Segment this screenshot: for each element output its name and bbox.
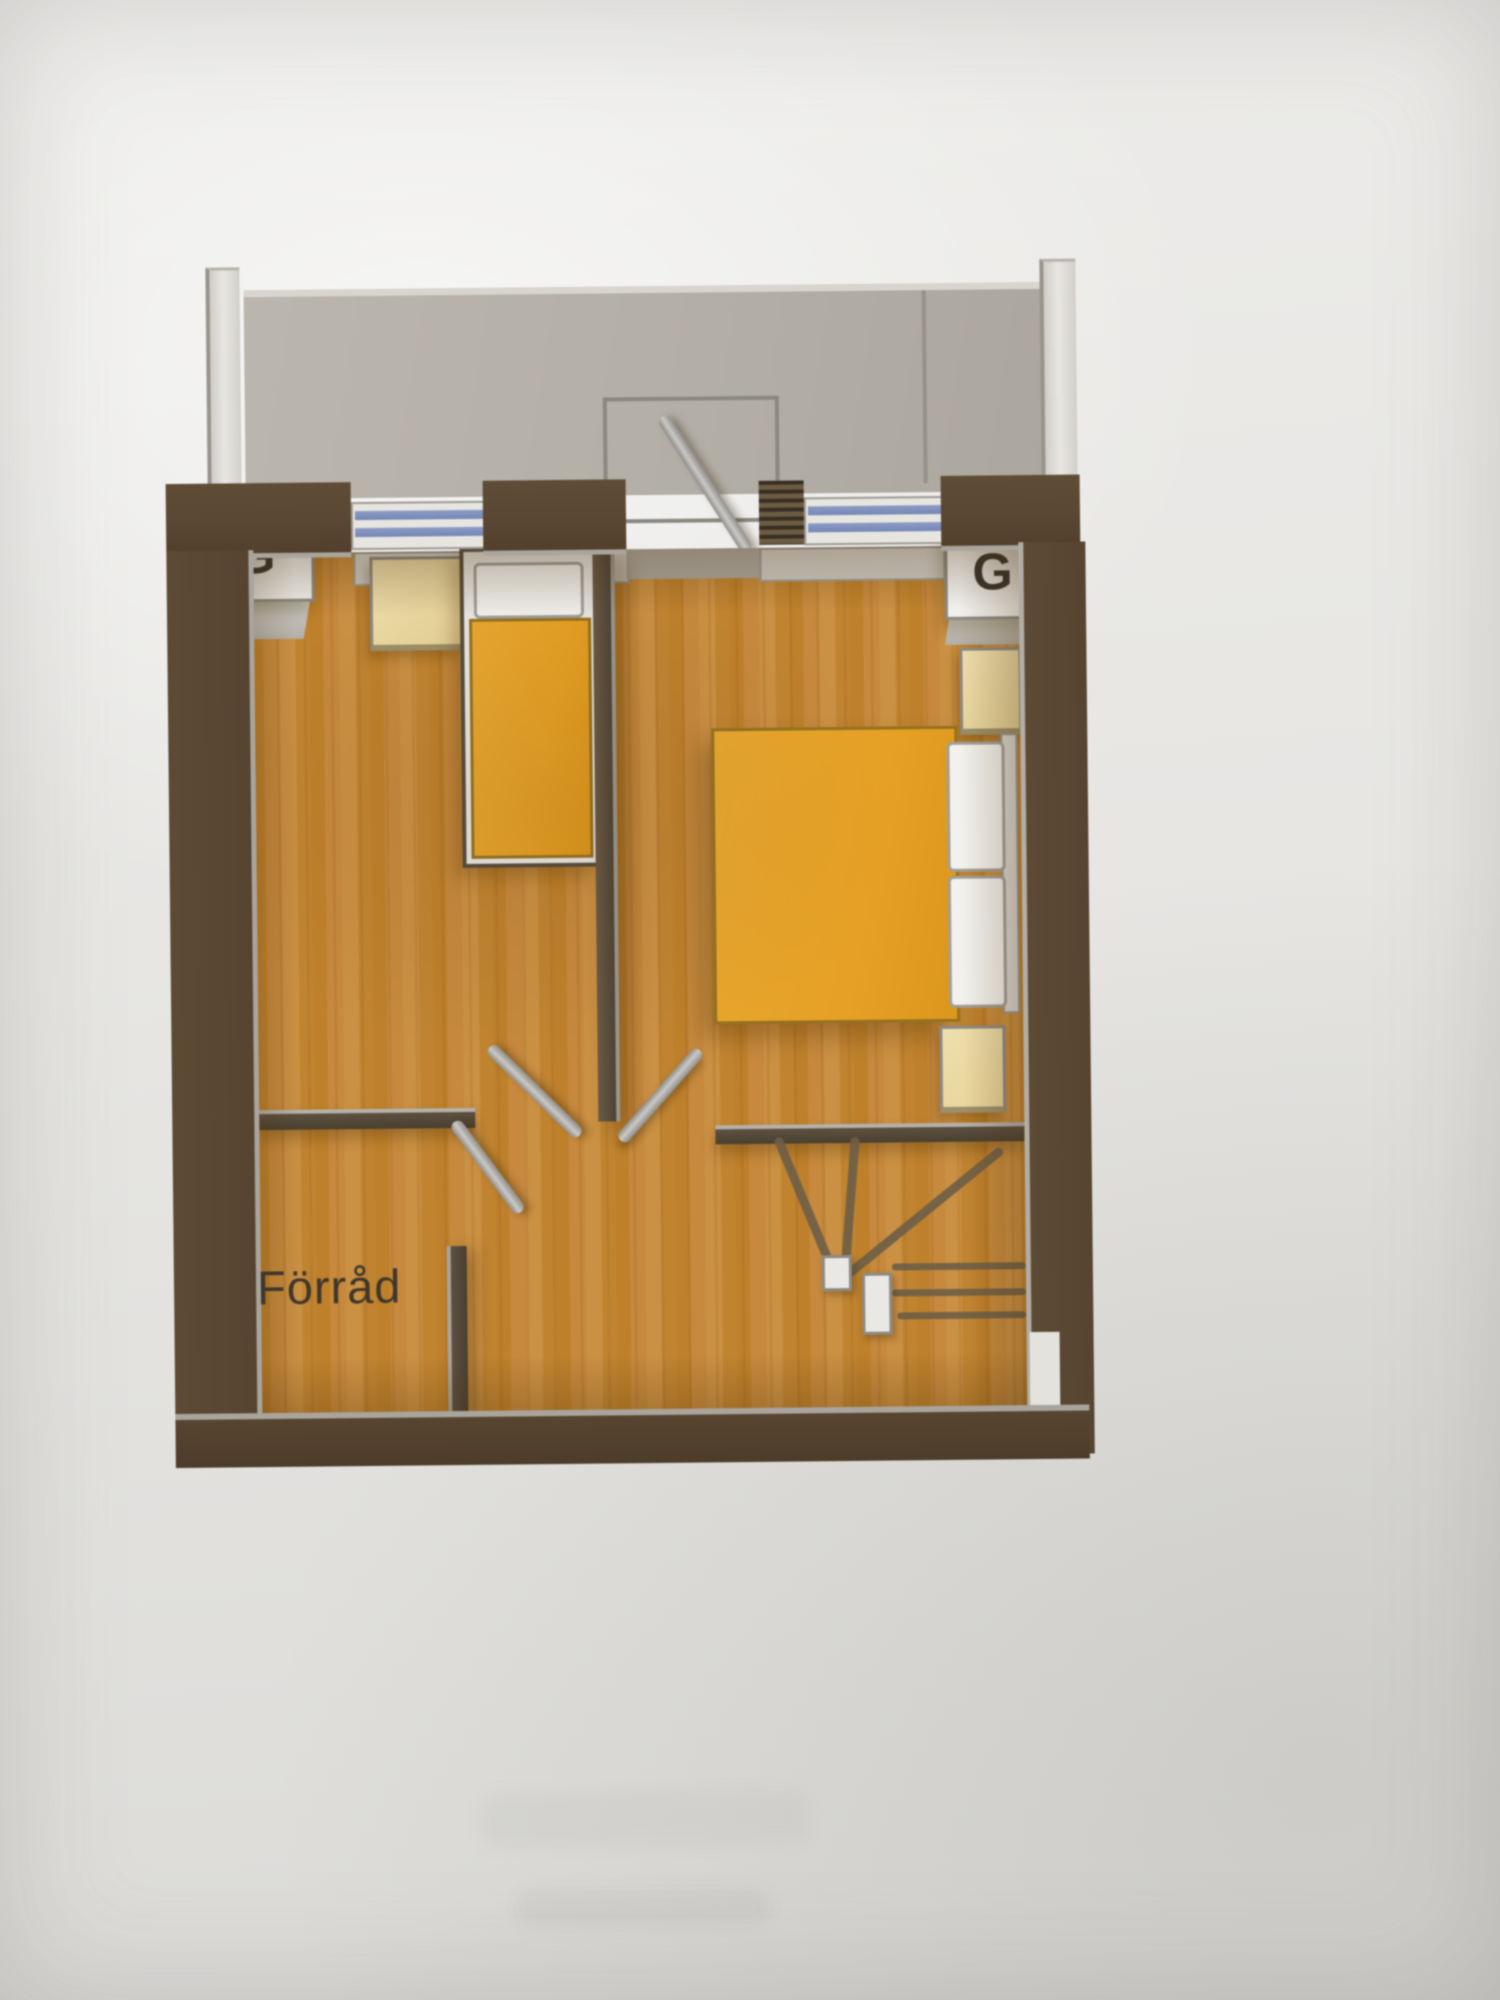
hall-wall-right — [715, 1122, 1024, 1144]
window-sill-right — [759, 546, 945, 582]
hatched-wall-pier — [759, 480, 805, 544]
stair-newel-post-1 — [822, 1255, 852, 1291]
exterior-wall-left — [166, 550, 263, 1463]
single-bed-pillow — [473, 562, 584, 619]
nightstand-right-room-bottom — [939, 1025, 1006, 1113]
exterior-wall-top-center — [483, 479, 627, 555]
exterior-wall-bottom — [175, 1404, 1090, 1468]
photo-of-floor-plan: G G — [0, 0, 1500, 2000]
hall-wall-left — [259, 1108, 475, 1130]
balcony-railing-post-right — [1039, 259, 1077, 488]
right-wall-opening — [1030, 1332, 1061, 1408]
storage-room-label: Förråd — [257, 1259, 402, 1316]
exterior-wall-top-left — [166, 482, 352, 559]
window-glass-line — [808, 522, 941, 532]
double-bed-pillow-1 — [946, 741, 1005, 872]
paper-showthrough-smudge — [479, 1789, 810, 1847]
storage-room-wall — [447, 1246, 469, 1414]
exterior-wall-right — [1018, 541, 1095, 1454]
single-bed-mattress — [469, 618, 594, 859]
balcony-railing-post-left — [205, 267, 241, 490]
paper-showthrough-smudge — [515, 1888, 770, 1929]
window-right-bedroom — [804, 496, 945, 545]
window-glass-line — [355, 510, 483, 520]
balcony-door-threshold — [626, 548, 759, 579]
window-left-bedroom — [351, 501, 487, 550]
exterior-wall-top-right — [941, 475, 1081, 551]
wardrobe-right-label: G — [972, 542, 1013, 602]
window-glass-line — [808, 505, 941, 515]
nightstand-left-room — [369, 556, 463, 651]
double-bed-pillow-2 — [948, 875, 1007, 1008]
double-bed-mattress — [711, 726, 960, 1025]
nightstand-right-room-top — [959, 647, 1022, 735]
floor-plan: G G — [0, 0, 1500, 2000]
stair-newel-post-2 — [862, 1273, 893, 1335]
stair-tread-2 — [892, 1288, 1026, 1296]
window-glass-line — [355, 527, 483, 537]
stair-tread-3 — [897, 1311, 1026, 1319]
stair-tread-1 — [892, 1262, 1026, 1270]
